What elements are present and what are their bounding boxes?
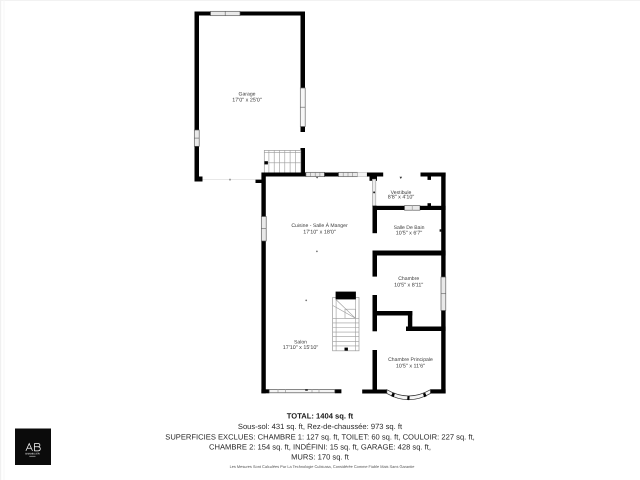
svg-text:MURS: 170 sq. ft: MURS: 170 sq. ft	[291, 452, 350, 461]
svg-text:10'5" x 8'11": 10'5" x 8'11"	[394, 282, 423, 288]
svg-text:17'10" x 18'0": 17'10" x 18'0"	[303, 229, 336, 235]
svg-text:Chambre: Chambre	[398, 276, 419, 282]
svg-text:Chambre Principale: Chambre Principale	[388, 357, 433, 363]
svg-text:10'5" x 6'7": 10'5" x 6'7"	[396, 231, 423, 237]
svg-text:17'0" x 25'0": 17'0" x 25'0"	[232, 98, 262, 104]
svg-text:Garage: Garage	[239, 91, 256, 97]
svg-text:Les Mesures Sont Calculées Par: Les Mesures Sont Calculées Par La Techno…	[230, 464, 415, 469]
svg-text:Cuisine - Salle À Manger: Cuisine - Salle À Manger	[291, 222, 348, 229]
svg-text:Sous-sol: 431 sq. ft, Rez-de-c: Sous-sol: 431 sq. ft, Rez-de-chaussée: 9…	[238, 422, 403, 431]
svg-text:TOTAL: 1404 sq. ft: TOTAL: 1404 sq. ft	[287, 412, 354, 421]
svg-text:SUPERFICIES EXCLUES: CHAMBRE 1: SUPERFICIES EXCLUES: CHAMBRE 1: 127 sq. …	[165, 432, 475, 441]
svg-text:CHAMBRE 2: 154 sq. ft, INDÉFIN: CHAMBRE 2: 154 sq. ft, INDÉFINI: 15 sq. …	[209, 443, 431, 452]
svg-text:10'5" x 11'6": 10'5" x 11'6"	[396, 364, 425, 370]
svg-text:17'10" x 15'10": 17'10" x 15'10"	[283, 345, 319, 351]
svg-text:IMMOBILIER: IMMOBILIER	[25, 453, 40, 456]
svg-text:8'8" x 4'10": 8'8" x 4'10"	[388, 195, 415, 201]
